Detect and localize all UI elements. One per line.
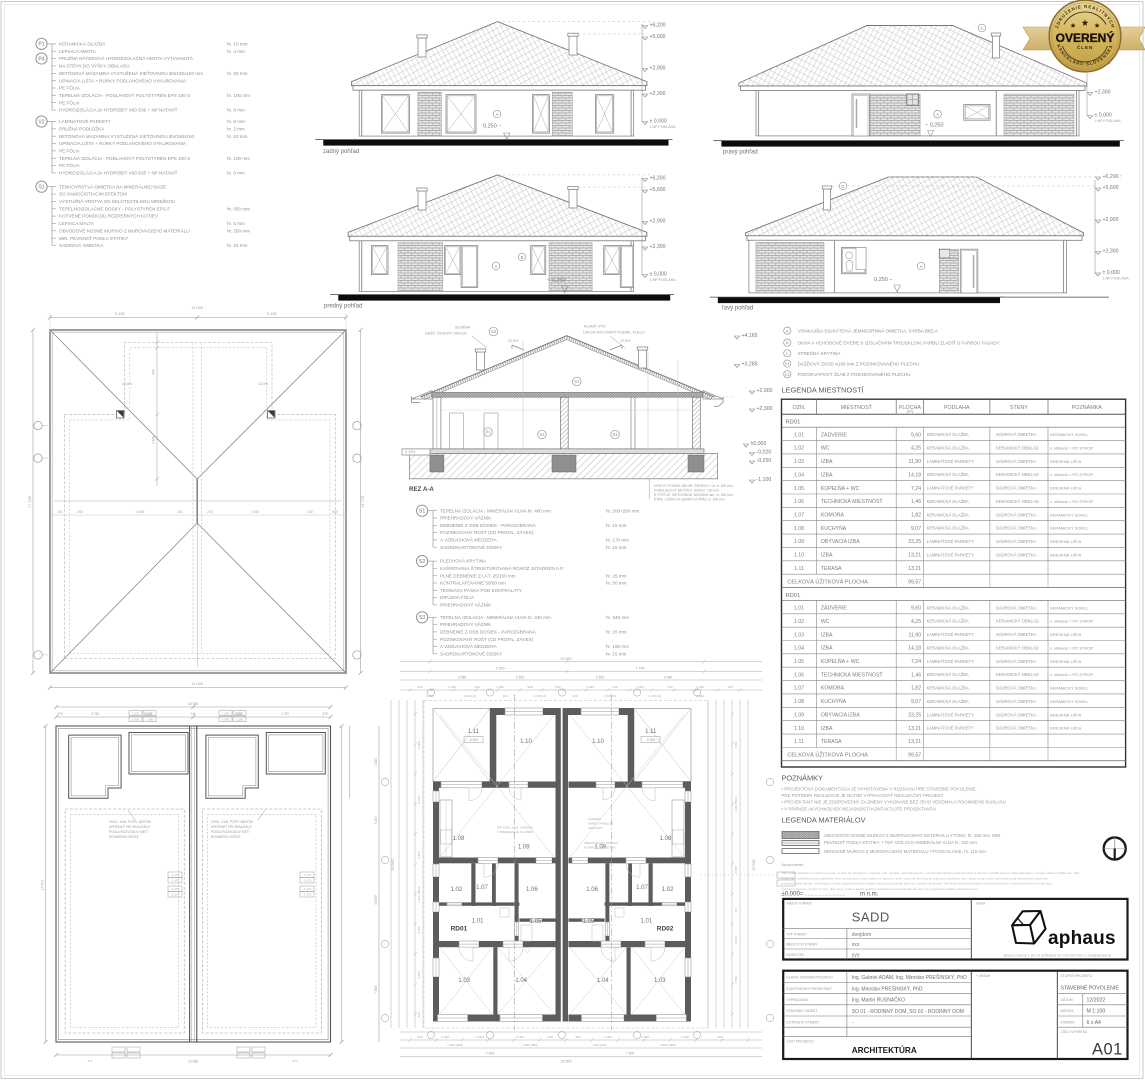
svg-text:OBÝVACIA IZBA: OBÝVACIA IZBA — [821, 711, 860, 718]
svg-text:12,5%: 12,5% — [122, 382, 133, 386]
svg-text:KÚPEĽŇA + WC: KÚPEĽŇA + WC — [821, 658, 860, 665]
svg-text:LAMINÁTOVÉ PARKETY: LAMINÁTOVÉ PARKETY — [927, 659, 975, 664]
svg-text:IZBA: IZBA — [821, 553, 833, 559]
svg-text:SÁDROVÁ OMIETKA: SÁDROVÁ OMIETKA — [996, 686, 1037, 691]
svg-text:PRE POTREBY REALIZÁCIE JE NUTN: PRE POTREBY REALIZÁCIE JE NUTNÉ VYPRACOV… — [782, 793, 945, 798]
svg-text:1.09: 1.09 — [518, 845, 530, 851]
svg-text:KOMORA: KOMORA — [821, 686, 845, 692]
svg-text:1.11: 1.11 — [794, 739, 804, 745]
svg-text:1.09: 1.09 — [794, 712, 804, 718]
svg-text:KERAMICKÝ SOKEL: KERAMICKÝ SOKEL — [1050, 526, 1089, 531]
svg-text:BETÓNOVÁ MAZANINA VYSTUŽENÁ SI: BETÓNOVÁ MAZANINA VYSTUŽENÁ SIEŤOVINOU Ø… — [59, 69, 203, 76]
svg-text:A: A — [495, 264, 498, 269]
svg-text:4,25: 4,25 — [911, 619, 921, 625]
svg-text:1.10: 1.10 — [520, 739, 532, 745]
svg-text:KERAMICKÁ DLAŽBA: KERAMICKÁ DLAŽBA — [927, 446, 969, 451]
svg-text:0,250 −: 0,250 − — [483, 124, 502, 130]
svg-text:HLAVNÝ INŽINIER PROJEKTU: HLAVNÝ INŽINIER PROJEKTU — [786, 975, 833, 980]
svg-text:PODOKVAPOVÝ ŽĽAB Z POZINKOVANÉ: PODOKVAPOVÝ ŽĽAB Z POZINKOVANÉHO PLECHU — [798, 370, 911, 377]
svg-text:UPÍNACIA LIŠTA + RÚRKY PODLAHO: UPÍNACIA LIŠTA + RÚRKY PODLAHOVÉHO VYKUR… — [59, 140, 187, 146]
svg-text:LAMINÁTOVÉ PARKETY: LAMINÁTOVÉ PARKETY — [927, 459, 975, 464]
svg-text:± 0,000: ± 0,000 — [1103, 270, 1120, 276]
svg-text:2 000 (2): 2 000 (2) — [534, 694, 546, 698]
svg-text:KAŠÍROVANÁ ŠTRUKTÚROVANÁ ROHOŽ: KAŠÍROVANÁ ŠTRUKTÚROVANÁ ROHOŽ JUTADREN … — [440, 564, 564, 571]
svg-text:• V PRÍPADE AKÝCHKOĽVEK NEJASN: • V PRÍPADE AKÝCHKOĽVEK NEJASNOSTÍ KONTA… — [782, 806, 937, 811]
svg-text:hr. 50 mm: hr. 50 mm — [606, 581, 627, 586]
svg-text:PODKLADOVÝ BETÓN C 16/20 hr. 1: PODKLADOVÝ BETÓN C 16/20 hr. 150 mm — [654, 488, 719, 493]
svg-text:KERAMICKÝ OBKLAD: KERAMICKÝ OBKLAD — [996, 619, 1039, 624]
svg-text:TEPELNÁ IZOLÁCIA - PODLAHOVÝ P: TEPELNÁ IZOLÁCIA - PODLAHOVÝ POLYSTYRÉN … — [59, 92, 190, 98]
svg-text:7 700: 7 700 — [636, 667, 645, 671]
svg-text:99,57: 99,57 — [908, 579, 921, 585]
svg-text:7 400: 7 400 — [486, 1052, 495, 1056]
svg-text:ROZMEROV KRTEĽ: ROZMEROV KRTEĽ — [109, 835, 139, 839]
svg-text:SADROKARTÓNOVÉ DOSKY: SADROKARTÓNOVÉ DOSKY — [440, 544, 502, 550]
svg-text:KERAMICKÁ DLAŽBA: KERAMICKÁ DLAŽBA — [927, 699, 969, 704]
svg-text:-0.300: -0.300 — [469, 738, 479, 742]
svg-text:V2: V2 — [539, 432, 545, 437]
svg-text:UPÍNACIA LIŠTA + RÚRKY PODLAHO: UPÍNACIA LIŠTA + RÚRKY PODLAHOVÉHO VYKUR… — [59, 77, 187, 83]
svg-text:1,46: 1,46 — [911, 672, 921, 678]
svg-text:LEPIACA MALTA: LEPIACA MALTA — [59, 221, 95, 226]
svg-text:9,60: 9,60 — [911, 432, 921, 438]
svg-text:MIESTO VÝSTAVBY: MIESTO VÝSTAVBY — [786, 943, 818, 947]
svg-text:KLIMATIZ. JEDNOTIEK: KLIMATIZ. JEDNOTIEK — [584, 846, 616, 850]
svg-text:A01: A01 — [1092, 1041, 1123, 1059]
svg-text:375: 375 — [322, 712, 328, 716]
svg-text:±0,000=: ±0,000= — [782, 892, 804, 898]
svg-text:13,21: 13,21 — [908, 566, 921, 572]
svg-text:BETÓNOVÁ MAZANINA VYSTUŽENÁ SI: BETÓNOVÁ MAZANINA VYSTUŽENÁ SIEŤOVINOU Ø… — [59, 132, 194, 139]
svg-text:SÁDROVÁ OMIETKA: SÁDROVÁ OMIETKA — [996, 712, 1037, 717]
svg-text:písoma Kodela stávba, menščajú: písoma Kodela stávba, menščajúce v tomto… — [782, 882, 1052, 886]
svg-text:FORMÁT: FORMÁT — [1061, 1020, 1075, 1024]
svg-text:+3,285: +3,285 — [742, 361, 758, 367]
svg-text:V PRIEREZE JE DL.ZÁBR.: V PRIEREZE JE DL.ZÁBR. — [497, 830, 534, 834]
svg-text:900 (900): 900 (900) — [593, 1043, 606, 1047]
svg-text:4 005: 4 005 — [417, 741, 421, 749]
svg-text:S1: S1 — [419, 509, 425, 515]
svg-text:99,57: 99,57 — [908, 753, 921, 759]
svg-text:IZBA: IZBA — [821, 459, 833, 465]
svg-text:400: 400 — [152, 369, 156, 375]
svg-text:PLNÉ DEBNENIE Z LÁT. 25/150 mm: PLNÉ DEBNENIE Z LÁT. 25/150 mm — [440, 572, 516, 578]
svg-text:250: 250 — [77, 510, 83, 514]
svg-text:9,60: 9,60 — [911, 606, 921, 612]
svg-text:VONKAJŠIA SILIKÁTOVÁ JEMNOZRNN: VONKAJŠIA SILIKÁTOVÁ JEMNOZRNNÁ OMIETKA,… — [798, 328, 939, 334]
svg-text:KERAMICKÁ DLAŽBA: KERAMICKÁ DLAŽBA — [927, 512, 969, 517]
svg-text:1 800 (900): 1 800 (900) — [447, 1043, 463, 1047]
svg-text:1.07: 1.07 — [794, 513, 804, 519]
svg-text:SO 01 - RODINNÝ DOM, SO 02 - R: SO 01 - RODINNÝ DOM, SO 02 - RODINNÝ DOM — [852, 1008, 964, 1015]
svg-text:OVERENÝ: OVERENÝ — [1056, 30, 1115, 45]
svg-text:STAVEBNÉ POVOLENIE: STAVEBNÉ POVOLENIE — [1061, 985, 1120, 992]
svg-text:1 400 (800): 1 400 (800) — [417, 887, 421, 903]
svg-text:ARCHITEKTÚRA: ARCHITEKTÚRA — [852, 1044, 917, 1055]
svg-text:1.500: 1.500 — [132, 718, 140, 722]
svg-text:13 855: 13 855 — [374, 895, 378, 905]
svg-text:+6,200: +6,200 — [650, 175, 666, 181]
svg-text:IZBA: IZBA — [821, 632, 833, 638]
svg-text:4 005: 4 005 — [374, 758, 378, 766]
svg-text:2 400: 2 400 — [476, 1035, 484, 1039]
svg-text:MIERKA: MIERKA — [1061, 1009, 1075, 1013]
svg-text:15 925: 15 925 — [752, 860, 756, 871]
svg-text:1.10: 1.10 — [592, 739, 604, 745]
svg-text:UMIES. PANELOV: UMIES. PANELOV — [588, 822, 613, 826]
svg-text:12,5%: 12,5% — [620, 339, 631, 343]
svg-text:KERAMICKÝ SOKEL: KERAMICKÝ SOKEL — [1050, 686, 1089, 691]
svg-text:LAMINÁTOVÉ PARKETY: LAMINÁTOVÉ PARKETY — [927, 712, 975, 717]
svg-text:A VZDUCHOVÁ MEDZERA: A VZDUCHOVÁ MEDZERA — [440, 537, 498, 543]
svg-text:SÁDROVÁ OMIETKA: SÁDROVÁ OMIETKA — [996, 659, 1037, 664]
svg-text:4,25: 4,25 — [911, 446, 921, 452]
svg-text:1.10: 1.10 — [794, 726, 804, 732]
svg-text:KONTRALATOVANIE 50/50 mm: KONTRALATOVANIE 50/50 mm — [440, 581, 506, 586]
svg-text:DREVENÁ LIŠTA: DREVENÁ LIŠTA — [1050, 659, 1082, 664]
svg-text:SÁDROVÁ OMIETKA: SÁDROVÁ OMIETKA — [996, 726, 1037, 731]
svg-text:+2,300: +2,300 — [650, 244, 666, 250]
svg-text:3 580: 3 580 — [664, 676, 673, 680]
svg-text:KERAMICKÝ OBKLAD: KERAMICKÝ OBKLAD — [996, 672, 1039, 677]
svg-text:KERAMICKÝ SOKEL: KERAMICKÝ SOKEL — [1050, 699, 1089, 704]
svg-text:TERASA: TERASA — [821, 566, 842, 572]
svg-text:SÁDROVÁ OMIETKA: SÁDROVÁ OMIETKA — [996, 552, 1037, 557]
svg-text:3 000: 3 000 — [417, 971, 421, 979]
svg-text:240: 240 — [307, 510, 313, 514]
svg-text:hr. 250 mm: hr. 250 mm — [227, 228, 250, 233]
svg-text:ZÁDVERIE: ZÁDVERIE — [821, 605, 847, 612]
svg-text:KERAMICKÁ DLAŽBA: KERAMICKÁ DLAŽBA — [927, 619, 969, 624]
svg-text:1.500: 1.500 — [222, 712, 230, 716]
svg-text:13,21: 13,21 — [908, 553, 921, 559]
svg-text:STENY: STENY — [1010, 405, 1028, 411]
svg-text:DEBNENIE Z OSB DOSIEK - PAROZÁ: DEBNENIE Z OSB DOSIEK - PAROZÁBRANA — [440, 629, 537, 635]
svg-text:KUCHYŇA: KUCHYŇA — [821, 525, 847, 532]
svg-text:DOTKNUTÉ VÝMERY: DOTKNUTÉ VÝMERY — [786, 1019, 820, 1024]
svg-text:12,5%: 12,5% — [508, 339, 519, 343]
svg-text:DREVENÁ LIŠTA: DREVENÁ LIŠTA — [1050, 459, 1082, 464]
svg-text:1.500: 1.500 — [146, 718, 154, 722]
svg-text:KOMORA: KOMORA — [821, 513, 845, 519]
svg-text:S2: S2 — [419, 559, 425, 565]
svg-text:1.NP PODLAHA: 1.NP PODLAHA — [650, 278, 677, 282]
svg-text:ČLEN: ČLEN — [1077, 44, 1093, 51]
svg-text:1.11: 1.11 — [794, 566, 804, 572]
svg-text:HYDROIZOLÁCIA 2x HYDROBIT V60: HYDROIZOLÁCIA 2x HYDROBIT V60 S35 + NP N… — [59, 106, 178, 113]
svg-text:23,25: 23,25 — [908, 712, 921, 718]
svg-text:NENOSNÉ MURIVO Z MUROVACIEHO M: NENOSNÉ MURIVO Z MUROVACIEHO MATERIÁLU Y… — [824, 849, 986, 854]
svg-text:POZNÁMKY: POZNÁMKY — [782, 773, 824, 782]
svg-text:2 000: 2 000 — [604, 1035, 612, 1039]
svg-text:1.04: 1.04 — [597, 978, 609, 984]
svg-text:16 185: 16 185 — [188, 1060, 198, 1064]
svg-text:VÝSTUŽNÁ VRSTVA SO SKLOTEXTILN: VÝSTUŽNÁ VRSTVA SO SKLOTEXTILNOU MRIEŽKO… — [59, 197, 175, 204]
svg-text:SÁDROVÁ OMIETKA: SÁDROVÁ OMIETKA — [996, 486, 1037, 491]
svg-text:15 925: 15 925 — [391, 860, 395, 871]
svg-text:1.11: 1.11 — [468, 729, 480, 735]
svg-text:KERAMICKÝ OBKLAD: KERAMICKÝ OBKLAD — [996, 472, 1039, 477]
svg-text:14 000: 14 000 — [191, 682, 203, 686]
svg-text:TEPELNÁ IZOLÁCIA - PODLAHOVÝ P: TEPELNÁ IZOLÁCIA - PODLAHOVÝ POLYSTYRÉN … — [59, 155, 190, 161]
svg-text:SÁDROVÁ OMIETKA: SÁDROVÁ OMIETKA — [996, 512, 1037, 517]
svg-text:1.04: 1.04 — [794, 646, 804, 652]
svg-text:POZNÁMKA: POZNÁMKA — [1072, 404, 1103, 411]
svg-text:hr. 200+200 mm: hr. 200+200 mm — [606, 508, 639, 513]
svg-text:MIESTNOSŤ: MIESTNOSŤ — [841, 403, 873, 411]
svg-text:1.06: 1.06 — [526, 887, 538, 893]
svg-text:SÁDROVÁ OMIETKA: SÁDROVÁ OMIETKA — [996, 699, 1037, 704]
svg-text:KOTVENÉ POMOCOU ROZPERNÝCH KOT: KOTVENÉ POMOCOU ROZPERNÝCH KOTIEV — [59, 213, 159, 219]
svg-text:3 730: 3 730 — [281, 712, 289, 716]
svg-text:OBVODOVÉ NOSNÉ MURIVO Z MUROVA: OBVODOVÉ NOSNÉ MURIVO Z MUROVACIEHO MATE… — [59, 227, 190, 233]
svg-text:+6,200 :: +6,200 : — [1103, 174, 1122, 180]
svg-text:hr. 4 mm: hr. 4 mm — [227, 49, 245, 54]
svg-text:PRIEHRADOVÝ VÄZNÍK: PRIEHRADOVÝ VÄZNÍK — [440, 602, 492, 608]
svg-text:14,18: 14,18 — [908, 646, 921, 652]
svg-text:7,24: 7,24 — [911, 659, 921, 665]
svg-text:C: C — [841, 184, 844, 189]
svg-text:v. obkladu = PO STROP: v. obkladu = PO STROP — [1050, 499, 1093, 504]
svg-text:xxx: xxx — [852, 942, 860, 948]
svg-text:7 308: 7 308 — [374, 986, 378, 994]
svg-text:LAMINÁTOVÉ PARKETY: LAMINÁTOVÉ PARKETY — [59, 118, 111, 124]
svg-text:4 100: 4 100 — [152, 436, 156, 444]
svg-text:100: 100 — [502, 694, 507, 698]
svg-text:-0.300: -0.300 — [646, 738, 656, 742]
svg-text:ľavý pohľad: ľavý pohľad — [722, 306, 753, 312]
svg-text:1.08: 1.08 — [453, 836, 465, 842]
svg-text:1.05: 1.05 — [794, 486, 804, 492]
svg-text:900: 900 — [555, 685, 560, 689]
svg-text:SÁDROVÁ OMIETKA: SÁDROVÁ OMIETKA — [996, 605, 1037, 610]
svg-text:KERAMICKÝ OBKLAD: KERAMICKÝ OBKLAD — [996, 645, 1039, 650]
svg-text:KERAMICKÁ DLAŽBA: KERAMICKÁ DLAŽBA — [927, 605, 969, 610]
svg-text:+2,300: +2,300 — [1095, 89, 1111, 95]
svg-text:STAVEBNÝ OBJEKT: STAVEBNÝ OBJEKT — [786, 1009, 817, 1013]
svg-text:LAMINÁTOVÉ PARKETY: LAMINÁTOVÉ PARKETY — [927, 539, 975, 544]
svg-text:16 185: 16 185 — [188, 702, 198, 706]
svg-text:3 600: 3 600 — [417, 851, 421, 859]
svg-text:DREVENÁ LIŠTA: DREVENÁ LIŠTA — [1050, 712, 1082, 717]
svg-text:1 200: 1 200 — [681, 1035, 689, 1039]
svg-text:OBÝVACIA IZBA: OBÝVACIA IZBA — [821, 538, 860, 545]
svg-text:DIFÚZNA FÓLIA: DIFÚZNA FÓLIA — [440, 594, 475, 600]
svg-text:hr. 15 mm: hr. 15 mm — [606, 545, 627, 550]
svg-text:1.01: 1.01 — [640, 919, 652, 925]
svg-text:14,18: 14,18 — [908, 472, 921, 478]
svg-text:KERAMICKÝ SOKEL: KERAMICKÝ SOKEL — [1050, 605, 1089, 610]
svg-text:1.NP PODLAHA: 1.NP PODLAHA — [1103, 277, 1130, 281]
svg-text:1.05: 1.05 — [583, 919, 595, 925]
svg-text:± 0,000: ± 0,000 — [650, 118, 667, 124]
svg-text:B: B — [521, 255, 524, 260]
svg-text:v. obkladu = PO STROP: v. obkladu = PO STROP — [1050, 672, 1093, 677]
svg-text:S VÝSTUŽ. SIEŤOVINOU 150/150/6: S VÝSTUŽ. SIEŤOVINOU 150/150/6 mm, hr. 1… — [654, 492, 733, 497]
svg-text:DREVENÁ LIŠTA: DREVENÁ LIŠTA — [1050, 632, 1082, 637]
svg-text:TYP STAVBY: TYP STAVBY — [786, 932, 807, 936]
svg-text:1.03: 1.03 — [654, 978, 666, 984]
svg-text:hr. 8 mm: hr. 8 mm — [227, 119, 245, 124]
svg-text:1.04: 1.04 — [794, 472, 804, 478]
svg-text:4 555: 4 555 — [136, 510, 145, 514]
svg-text:17 500: 17 500 — [41, 880, 45, 890]
svg-text:250: 250 — [177, 510, 183, 514]
svg-text:11,90: 11,90 — [908, 459, 921, 465]
svg-text:14 000: 14 000 — [191, 306, 203, 310]
svg-text:+2,900: +2,900 — [650, 65, 666, 71]
svg-text:1.05: 1.05 — [794, 659, 804, 665]
svg-text:hr. 15 mm: hr. 15 mm — [606, 523, 627, 528]
svg-text:PREDPOKLAD. ÚPRAVA: PREDPOKLAD. ÚPRAVA — [584, 840, 618, 845]
svg-text:IZBA: IZBA — [821, 646, 833, 652]
svg-text:KERAMICKÁ DLAŽBA: KERAMICKÁ DLAŽBA — [927, 432, 969, 437]
svg-text:1.08: 1.08 — [794, 526, 804, 532]
svg-text:1.04: 1.04 — [515, 978, 527, 984]
svg-text:1.NP PODLAHA: 1.NP PODLAHA — [1095, 119, 1122, 123]
svg-text:-0,250: -0,250 — [757, 458, 772, 464]
svg-text:OKNÁ A VCHODOVÉ DVERE S IZOLAČ: OKNÁ A VCHODOVÉ DVERE S IZOLAČNÝM TROJSK… — [798, 338, 1000, 345]
svg-text:TEPELNÁ IZOLÁCIA - MINERÁLNA V: TEPELNÁ IZOLÁCIA - MINERÁLNA VLNA hr. 34… — [440, 614, 551, 620]
svg-text:6 x A4: 6 x A4 — [1087, 1020, 1102, 1026]
svg-text:WC: WC — [821, 619, 830, 625]
svg-text:PEVNOSŤ PODĽA STATIKY + TEP. I: PEVNOSŤ PODĽA STATIKY + TEP. IZOLÁCIA MI… — [824, 840, 977, 845]
svg-text:LAMINÁTOVÉ PARKETY: LAMINÁTOVÉ PARKETY — [927, 552, 975, 557]
svg-text:TENKOVRSTVÁ OMIETKA NA MINERÁL: TENKOVRSTVÁ OMIETKA NA MINERÁLNEJ BÁZE — [59, 183, 166, 189]
svg-text:PRIEHRADOVÝ VÄZNÍK: PRIEHRADOVÝ VÄZNÍK — [440, 621, 492, 627]
svg-text:1 440 (800): 1 440 (800) — [734, 797, 738, 813]
svg-text:1.11: 1.11 — [645, 729, 657, 735]
svg-text:7 300: 7 300 — [496, 667, 505, 671]
svg-text:12,5%: 12,5% — [258, 382, 269, 386]
svg-text:1.02: 1.02 — [794, 619, 804, 625]
svg-text:400: 400 — [417, 1035, 422, 1039]
svg-text:3 450: 3 450 — [734, 741, 738, 749]
svg-text:7,24: 7,24 — [911, 486, 921, 492]
svg-text:A: A — [786, 329, 789, 333]
svg-text:OZN.: OZN. — [793, 405, 806, 411]
svg-text:.............................: ............................. — [805, 892, 845, 898]
svg-text:S1: S1 — [612, 432, 618, 437]
svg-text:PODĽA ROZVODOV SIETÍ: PODĽA ROZVODOV SIETÍ — [211, 830, 250, 834]
svg-text:A VZDUCHOVÁ MEDZERA: A VZDUCHOVÁ MEDZERA — [440, 643, 498, 649]
svg-text:8 150: 8 150 — [267, 312, 277, 316]
svg-text:SO SAMOČISTIACIM EFEKTOM: SO SAMOČISTIACIM EFEKTOM — [59, 191, 127, 197]
svg-text:KÚPEĽŇA + WC: KÚPEĽŇA + WC — [821, 485, 860, 492]
svg-text:P4: P4 — [38, 56, 44, 62]
svg-text:375: 375 — [57, 712, 63, 716]
svg-text:P1: P1 — [485, 430, 491, 435]
svg-text:+2,900: +2,900 — [757, 388, 773, 394]
svg-text:hr. 5 mm: hr. 5 mm — [227, 221, 245, 226]
svg-text:MIN. PEVNOSŤ PODĽA STATIKY: MIN. PEVNOSŤ PODĽA STATIKY — [59, 234, 128, 241]
svg-text:4 360: 4 360 — [251, 510, 260, 514]
svg-text:hr. 100 mm: hr. 100 mm — [227, 93, 250, 98]
svg-text:1.01: 1.01 — [794, 432, 804, 438]
svg-text:ZVISL. KAN. POTR. MIESTA!: ZVISL. KAN. POTR. MIESTA! — [211, 820, 253, 824]
svg-text:KERAMICKÝ SOKEL: KERAMICKÝ SOKEL — [1050, 512, 1089, 517]
svg-text:C: C — [980, 26, 983, 31]
svg-text:140: 140 — [474, 685, 479, 689]
svg-text:KERAMICKÁ DLAŽBA: KERAMICKÁ DLAŽBA — [927, 499, 969, 504]
svg-text:+6,200: +6,200 — [650, 22, 666, 28]
svg-text:v. obkladu = PO STROP: v. obkladu = PO STROP — [1050, 446, 1093, 451]
svg-text:S2: S2 — [491, 329, 497, 334]
svg-text:K1: K1 — [785, 362, 790, 366]
svg-text:9,07: 9,07 — [911, 699, 921, 705]
svg-text:TEPELNÁ IZOLÁCIA - MINERÁLNA V: TEPELNÁ IZOLÁCIA - MINERÁLNA VLNA hr. 40… — [440, 507, 551, 513]
svg-text:1 800 (900): 1 800 (900) — [522, 1043, 538, 1047]
svg-text:VYPRACOVAL: VYPRACOVAL — [786, 998, 808, 1002]
svg-text:OBVODOVÉ NOSNÉ MURIVO Z MUROVA: OBVODOVÉ NOSNÉ MURIVO Z MUROVACIEHO MATE… — [824, 833, 1002, 838]
svg-text:900: 900 — [527, 685, 532, 689]
svg-text:240: 240 — [207, 510, 213, 514]
svg-text:DEBNENIE Z OSB DOSIEK - PAROZÁ: DEBNENIE Z OSB DOSIEK - PAROZÁBRANA — [440, 522, 537, 528]
svg-text:1.01: 1.01 — [472, 919, 484, 925]
svg-text:1.10: 1.10 — [794, 553, 804, 559]
svg-text:SÁDROVÁ OMIETKA: SÁDROVÁ OMIETKA — [996, 459, 1037, 464]
svg-text:1.05: 1.05 — [530, 919, 542, 925]
svg-text:+2,900: +2,900 — [650, 218, 666, 224]
svg-text:S 20%: S 20% — [405, 450, 415, 454]
svg-text:374: 374 — [292, 1059, 297, 1063]
svg-text:SADA: SADA — [976, 902, 986, 906]
svg-text:hr. 60 mm: hr. 60 mm — [227, 71, 248, 76]
svg-text:hr. 100 mm: hr. 100 mm — [227, 156, 250, 161]
svg-text:3 825: 3 825 — [734, 866, 738, 874]
svg-text:1.08: 1.08 — [660, 836, 672, 842]
svg-text:KERAMICKÝ OBKLAD: KERAMICKÝ OBKLAD — [996, 499, 1039, 504]
svg-text:POZINKOVANÝ ROŠT (CD PROFIL, Z: POZINKOVANÝ ROŠT (CD PROFIL, ZÁVES) — [440, 529, 534, 535]
svg-text:PRI KOM. ZVIS. VEDENIA: PRI KOM. ZVIS. VEDENIA — [497, 826, 533, 830]
svg-text:1.07: 1.07 — [636, 885, 648, 891]
svg-text:ROZMEROV KRTEĽ: ROZMEROV KRTEĽ — [211, 835, 241, 839]
svg-text:− 0,250: − 0,250 — [925, 123, 944, 129]
svg-text:DÁTUM: DÁTUM — [1061, 998, 1073, 1002]
svg-text:− 0,250: − 0,250 — [547, 278, 566, 284]
svg-text:SCHÉMA: SCHÉMA — [455, 325, 471, 330]
svg-text:• PROJEKTANT NIE JE ZODPOVEDNÝ: • PROJEKTANT NIE JE ZODPOVEDNÝ ZA ZMENY … — [782, 800, 1007, 805]
svg-text:720: 720 — [734, 907, 738, 912]
svg-text:SÁDROVÁ OMIETKA: SÁDROVÁ OMIETKA — [996, 432, 1037, 437]
svg-text:• PROJEKTOVÁ DOKUMENTÁCIA JE V: • PROJEKTOVÁ DOKUMENTÁCIA JE VYHOTOVENÁ … — [782, 787, 977, 792]
svg-text:hr. 8 mm: hr. 8 mm — [227, 108, 245, 113]
svg-text:1.500: 1.500 — [222, 718, 230, 722]
svg-text:KERAMICKÁ DLAŽBA: KERAMICKÁ DLAŽBA — [927, 472, 969, 477]
svg-text:WC: WC — [821, 446, 830, 452]
svg-text:INVESTOR: INVESTOR — [786, 953, 804, 957]
svg-text:NA STENY DO VÝŠKY OBKLADU: NA STENY DO VÝŠKY OBKLADU — [59, 63, 130, 69]
svg-text:3 550: 3 550 — [596, 676, 605, 680]
svg-text:5 167: 5 167 — [374, 816, 378, 824]
svg-text:2 000: 2 000 — [586, 685, 594, 689]
svg-text:PE FÓLIA: PE FÓLIA — [59, 99, 81, 105]
svg-text:1 000: 1 000 — [441, 1035, 449, 1039]
svg-text:17 100: 17 100 — [28, 496, 32, 508]
svg-text:v. obkladu = PO STROP: v. obkladu = PO STROP — [1050, 645, 1093, 650]
svg-text:PODĽA ROZVODOV SIETÍ: PODĽA ROZVODOV SIETÍ — [109, 830, 148, 834]
svg-text:7 300: 7 300 — [734, 976, 738, 984]
svg-text:8 410: 8 410 — [144, 712, 152, 716]
svg-text:9,07: 9,07 — [911, 526, 921, 532]
svg-text:400: 400 — [417, 1012, 421, 1017]
svg-text:ŠTRK. LÔŽKO W ZEMNÝCH PRÁC hr.: ŠTRK. LÔŽKO W ZEMNÝCH PRÁC hr. 150 mm — [654, 497, 725, 502]
svg-text:predný pohľad: predný pohľad — [324, 304, 362, 310]
svg-text:± 0,000: ± 0,000 — [1095, 112, 1112, 118]
svg-text:3 500: 3 500 — [234, 712, 242, 716]
svg-text:hr. 2 mm: hr. 2 mm — [227, 126, 245, 131]
svg-text:hr. 050 mm: hr. 050 mm — [227, 206, 250, 211]
